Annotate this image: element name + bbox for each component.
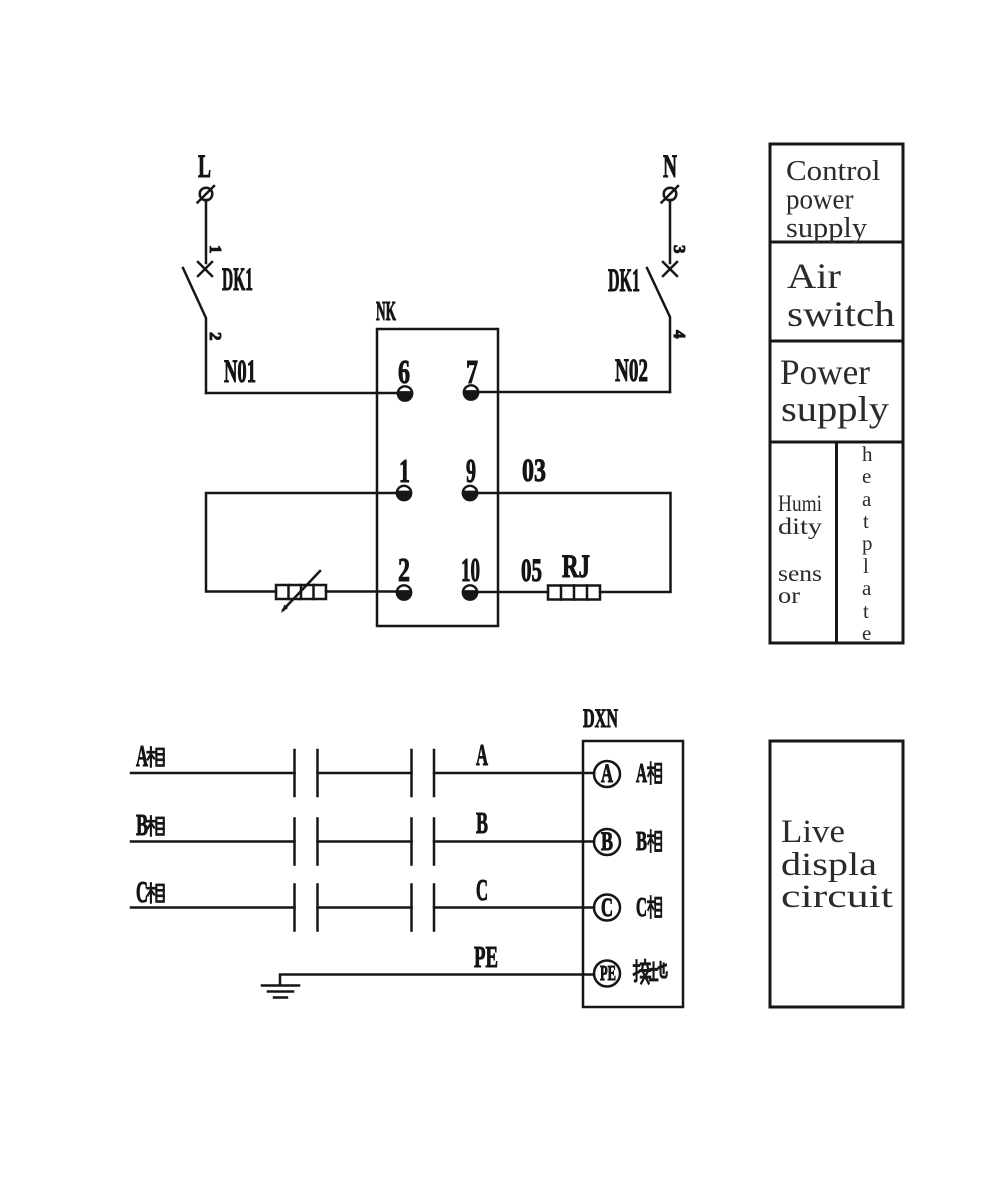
svg-text:A: A — [601, 759, 613, 788]
svg-text:or: or — [778, 583, 800, 608]
svg-text:2: 2 — [206, 332, 225, 341]
svg-text:RJ: RJ — [562, 549, 590, 585]
svg-text:power: power — [786, 184, 854, 216]
svg-text:supply: supply — [786, 212, 868, 244]
svg-text:Air: Air — [787, 256, 841, 296]
svg-text:C: C — [601, 893, 613, 922]
svg-text:DK1: DK1 — [222, 262, 253, 298]
svg-text:circuit: circuit — [781, 879, 893, 915]
svg-text:dity: dity — [778, 514, 823, 539]
svg-text:t: t — [863, 599, 869, 623]
svg-text:3: 3 — [670, 245, 689, 254]
svg-text:B: B — [601, 827, 613, 856]
svg-text:PE: PE — [474, 939, 498, 974]
svg-text:A: A — [136, 738, 148, 773]
svg-text:PE: PE — [600, 961, 616, 985]
svg-text:C: C — [636, 892, 647, 922]
svg-text:DXN: DXN — [583, 704, 618, 733]
svg-text:N: N — [663, 149, 677, 185]
svg-text:a: a — [862, 487, 872, 511]
svg-text:Control: Control — [786, 155, 881, 187]
svg-text:l: l — [863, 554, 869, 578]
svg-text:2: 2 — [398, 552, 410, 589]
svg-text:1: 1 — [206, 245, 225, 254]
svg-text:C: C — [136, 874, 148, 909]
svg-text:switch: switch — [787, 294, 895, 334]
svg-text:A: A — [636, 758, 647, 788]
svg-text:B: B — [636, 826, 647, 856]
svg-text:DK1: DK1 — [608, 263, 640, 299]
svg-text:A: A — [476, 737, 488, 772]
svg-text:4: 4 — [670, 330, 689, 339]
svg-text:1: 1 — [399, 453, 410, 490]
svg-text:9: 9 — [466, 453, 476, 490]
svg-text:Power: Power — [780, 352, 870, 392]
svg-text:C: C — [476, 872, 488, 907]
svg-text:L: L — [198, 149, 211, 185]
svg-text:NK: NK — [376, 296, 396, 326]
svg-text:N01: N01 — [224, 354, 256, 390]
svg-text:e: e — [862, 621, 871, 645]
svg-text:B: B — [476, 805, 488, 840]
svg-text:p: p — [862, 531, 873, 555]
svg-text:Live: Live — [781, 814, 845, 850]
svg-text:e: e — [862, 464, 871, 488]
svg-text:N02: N02 — [615, 353, 648, 389]
svg-text:05: 05 — [521, 553, 542, 589]
svg-text:displa: displa — [781, 847, 877, 883]
svg-text:03: 03 — [522, 453, 546, 489]
svg-text:Humi: Humi — [778, 491, 822, 516]
svg-text:B: B — [136, 807, 148, 842]
svg-text:t: t — [863, 509, 869, 533]
svg-text:a: a — [862, 576, 872, 600]
svg-text:supply: supply — [781, 389, 889, 429]
svg-text:h: h — [862, 442, 873, 466]
svg-text:10: 10 — [461, 552, 480, 589]
